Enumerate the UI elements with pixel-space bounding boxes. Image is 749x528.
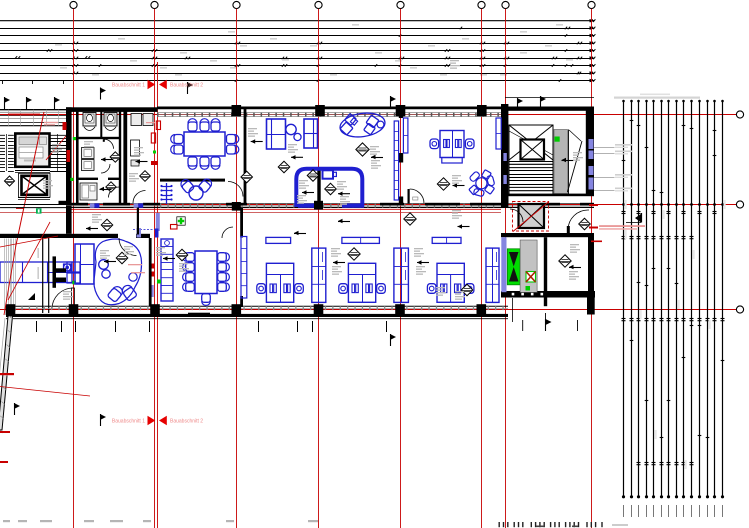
svg-text:Bauabschnitt 2: Bauabschnitt 2 — [170, 418, 203, 424]
svg-text:Bauabschnitt 2: Bauabschnitt 2 — [170, 82, 203, 88]
svg-text:Bauabschnitt 1: Bauabschnitt 1 — [112, 82, 145, 88]
svg-text:Bauabschnitt 1: Bauabschnitt 1 — [112, 418, 145, 424]
